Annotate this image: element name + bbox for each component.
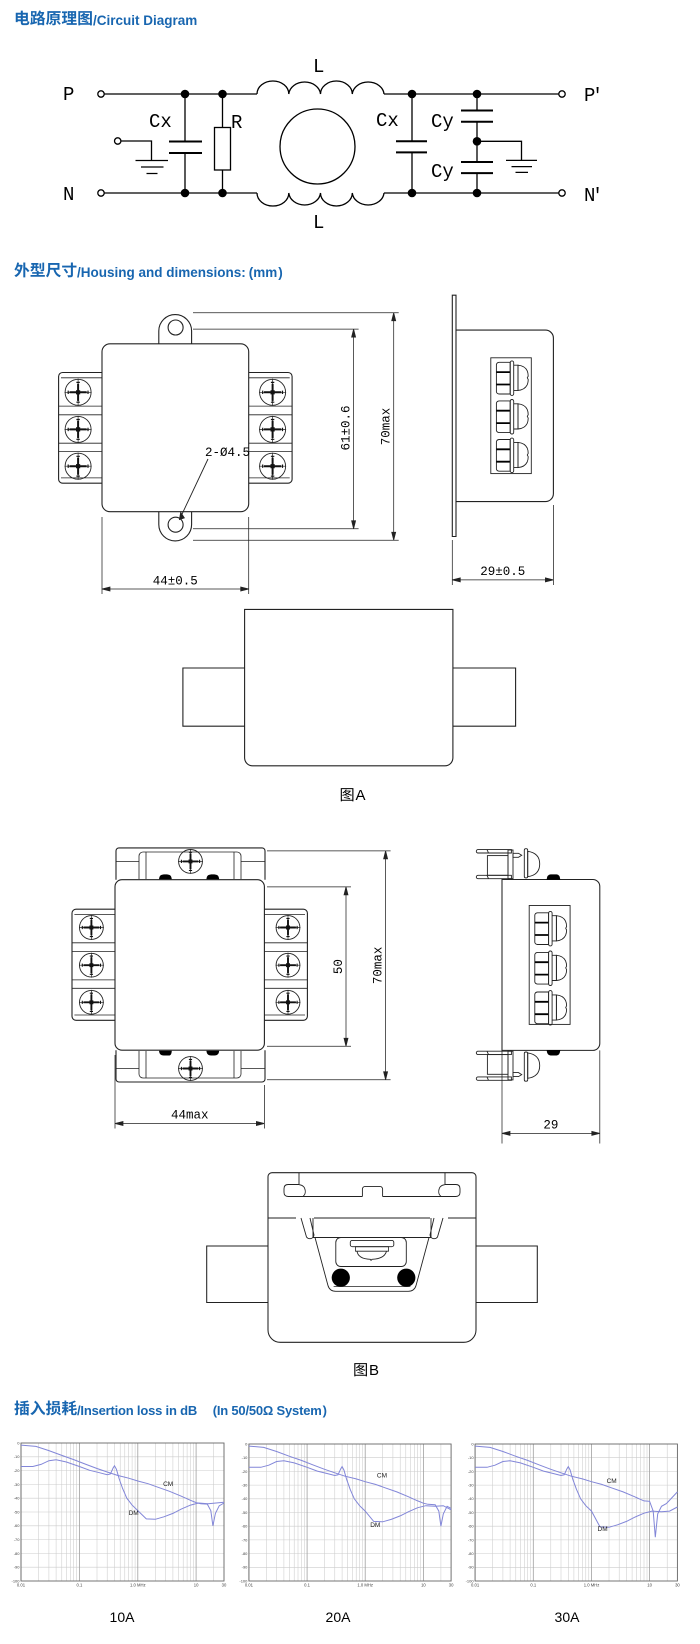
svg-text:CM: CM xyxy=(607,1478,617,1485)
svg-text:1.0 MHz: 1.0 MHz xyxy=(357,1583,373,1588)
svg-text:Cx: Cx xyxy=(376,110,399,132)
svg-text:-80: -80 xyxy=(242,1551,249,1556)
svg-text:-40: -40 xyxy=(14,1496,21,1501)
svg-text:B: B xyxy=(369,1362,379,1379)
svg-text:-30: -30 xyxy=(468,1483,475,1488)
svg-text:1.0 MHz: 1.0 MHz xyxy=(130,1583,146,1588)
svg-text:70max: 70max xyxy=(372,947,386,985)
svg-text:-50: -50 xyxy=(242,1510,249,1515)
svg-text:-30: -30 xyxy=(14,1482,21,1487)
svg-text:P′: P′ xyxy=(584,85,603,107)
svg-text:44max: 44max xyxy=(171,1109,209,1123)
svg-text:50: 50 xyxy=(332,959,346,974)
svg-text:-40: -40 xyxy=(468,1496,475,1501)
svg-text:-40: -40 xyxy=(242,1496,249,1501)
svg-text:-80: -80 xyxy=(14,1551,21,1556)
svg-text:-20: -20 xyxy=(14,1468,21,1473)
svg-text:-60: -60 xyxy=(14,1523,21,1528)
svg-text:N: N xyxy=(63,184,74,206)
svg-text:-50: -50 xyxy=(14,1509,21,1514)
svg-text:L: L xyxy=(313,212,324,234)
svg-text:-90: -90 xyxy=(14,1565,21,1570)
svg-text:-50: -50 xyxy=(468,1510,475,1515)
svg-text:30: 30 xyxy=(449,1583,454,1588)
svg-text:-20: -20 xyxy=(468,1469,475,1474)
svg-text:-10: -10 xyxy=(242,1455,249,1460)
svg-text:R: R xyxy=(231,112,242,134)
svg-text:10: 10 xyxy=(647,1583,652,1588)
svg-text:-20: -20 xyxy=(242,1469,249,1474)
svg-text:Cy: Cy xyxy=(431,111,454,133)
svg-text:10: 10 xyxy=(194,1583,199,1588)
svg-text:DM: DM xyxy=(129,1510,139,1517)
svg-text:L: L xyxy=(313,56,324,78)
svg-text:-90: -90 xyxy=(242,1565,249,1570)
svg-text:30: 30 xyxy=(222,1583,227,1588)
svg-text:0: 0 xyxy=(245,1441,248,1446)
svg-text:N′: N′ xyxy=(584,185,603,207)
svg-text:-70: -70 xyxy=(468,1537,475,1542)
svg-text:-10: -10 xyxy=(468,1455,475,1460)
svg-text:-70: -70 xyxy=(242,1537,249,1542)
svg-text:0.1: 0.1 xyxy=(530,1583,536,1588)
svg-text:29: 29 xyxy=(543,1119,558,1133)
svg-text:44±0.5: 44±0.5 xyxy=(153,575,198,589)
svg-text:0: 0 xyxy=(17,1440,20,1445)
svg-text:0.01: 0.01 xyxy=(471,1583,480,1588)
svg-text:30: 30 xyxy=(675,1583,680,1588)
svg-text:-30: -30 xyxy=(242,1483,249,1488)
svg-text:Cy: Cy xyxy=(431,161,454,183)
svg-text:-10: -10 xyxy=(14,1454,21,1459)
svg-text:1.0 MHz: 1.0 MHz xyxy=(584,1583,600,1588)
svg-text:0.01: 0.01 xyxy=(17,1583,26,1588)
svg-text:-70: -70 xyxy=(14,1537,21,1542)
svg-text:-80: -80 xyxy=(468,1551,475,1556)
svg-text:A: A xyxy=(356,787,366,804)
svg-text:DM: DM xyxy=(370,1522,380,1529)
svg-text:CM: CM xyxy=(163,1481,173,1488)
svg-text:-60: -60 xyxy=(242,1524,249,1529)
svg-text:0.1: 0.1 xyxy=(304,1583,310,1588)
svg-text:2-Ø4.5: 2-Ø4.5 xyxy=(205,446,250,460)
svg-text:29±0.5: 29±0.5 xyxy=(480,565,525,579)
svg-text:P: P xyxy=(63,84,74,106)
svg-text:70max: 70max xyxy=(380,408,394,446)
svg-text:-60: -60 xyxy=(468,1524,475,1529)
svg-text:10: 10 xyxy=(421,1583,426,1588)
svg-text:0.1: 0.1 xyxy=(76,1583,82,1588)
svg-text:DM: DM xyxy=(598,1526,608,1533)
svg-text:0.01: 0.01 xyxy=(245,1583,254,1588)
svg-text:61±0.6: 61±0.6 xyxy=(340,405,354,450)
svg-text:-90: -90 xyxy=(468,1565,475,1570)
svg-text:CM: CM xyxy=(377,1473,387,1480)
svg-text:0: 0 xyxy=(471,1441,474,1446)
svg-text:Cx: Cx xyxy=(149,111,172,133)
